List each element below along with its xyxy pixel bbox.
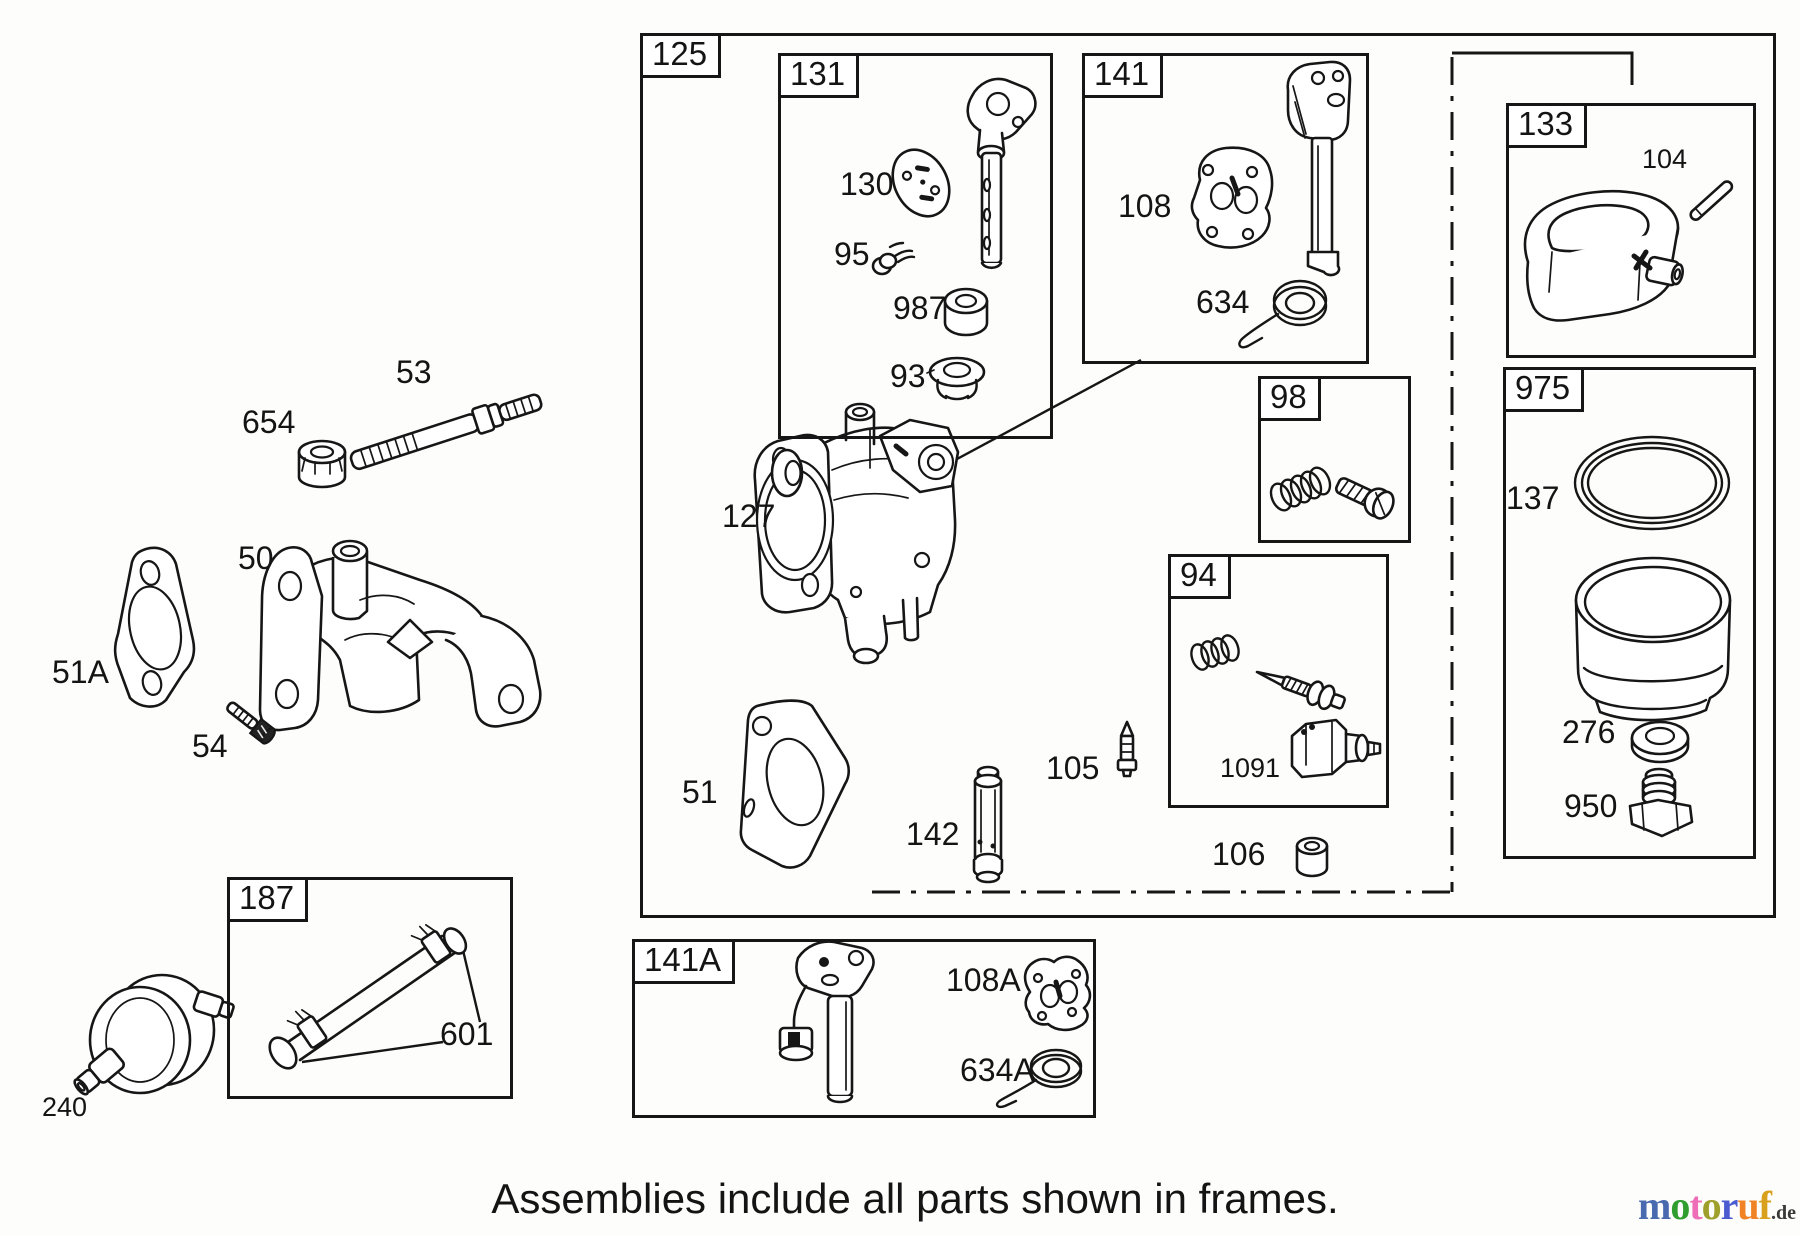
frame-133: 133 — [1506, 103, 1756, 358]
part-label-987: 987 — [893, 292, 946, 324]
logo-tld: .de — [1771, 1202, 1796, 1224]
part-label-654: 654 — [242, 406, 295, 438]
logo-letter: f — [1759, 1183, 1771, 1228]
motoruf-logo[interactable]: motoruf.de — [1638, 1186, 1796, 1226]
frame-94-label: 94 — [1168, 554, 1231, 599]
part-label-104: 104 — [1642, 146, 1687, 173]
frame-131-label: 131 — [778, 53, 859, 98]
part-label-634: 634 — [1196, 286, 1249, 318]
footer-note: Assemblies include all parts shown in fr… — [470, 1178, 1360, 1220]
logo-letter: r — [1721, 1183, 1738, 1228]
logo-letter: t — [1689, 1183, 1701, 1228]
part-label-142: 142 — [906, 818, 959, 850]
frame-133-label: 133 — [1506, 103, 1587, 148]
part-label-93: 93 — [890, 360, 926, 392]
frame-187-label: 187 — [227, 877, 308, 922]
stud-53-drawing — [348, 388, 544, 474]
part-label-137: 137 — [1506, 482, 1559, 514]
part-label-950: 950 — [1564, 790, 1617, 822]
frame-98-label: 98 — [1258, 376, 1321, 421]
part-label-50: 50 — [238, 542, 274, 574]
part-label-108a: 108A — [946, 964, 1021, 996]
logo-letter: o — [1670, 1183, 1689, 1228]
part-label-51: 51 — [682, 776, 718, 808]
logo-letter: o — [1702, 1183, 1721, 1228]
part-label-276: 276 — [1562, 716, 1615, 748]
part-label-601: 601 — [440, 1018, 493, 1050]
frame-125-label: 125 — [640, 33, 721, 78]
part-label-51a: 51A — [52, 656, 109, 688]
part-label-95: 95 — [834, 238, 870, 270]
part-label-240: 240 — [42, 1094, 87, 1121]
gasket-51a-drawing — [115, 548, 194, 707]
part-label-108: 108 — [1118, 190, 1171, 222]
part-label-54: 54 — [192, 730, 228, 762]
frame-187: 187 — [227, 877, 513, 1099]
part-label-130: 130 — [840, 168, 893, 200]
frame-141a-label: 141A — [632, 939, 735, 984]
carburetor-parts-diagram: 125 131 141 133 98 975 94 187 141A 53 65… — [0, 0, 1800, 1236]
frame-98: 98 — [1258, 376, 1411, 543]
manifold-50-drawing — [260, 541, 540, 730]
logo-letter: u — [1737, 1183, 1758, 1228]
part-label-106: 106 — [1212, 838, 1265, 870]
part-label-127: 127 — [722, 500, 775, 532]
frame-975: 975 — [1503, 367, 1756, 859]
part-label-1091: 1091 — [1220, 755, 1280, 782]
frame-141-label: 141 — [1082, 53, 1163, 98]
part-label-53: 53 — [396, 356, 432, 388]
fuel-filter-240-drawing — [70, 975, 235, 1099]
nut-654-drawing — [299, 441, 345, 487]
part-label-105: 105 — [1046, 752, 1099, 784]
logo-letter: m — [1638, 1183, 1670, 1228]
frame-141a: 141A — [632, 939, 1096, 1118]
part-label-634a: 634A — [960, 1054, 1035, 1086]
frame-975-label: 975 — [1503, 367, 1584, 412]
